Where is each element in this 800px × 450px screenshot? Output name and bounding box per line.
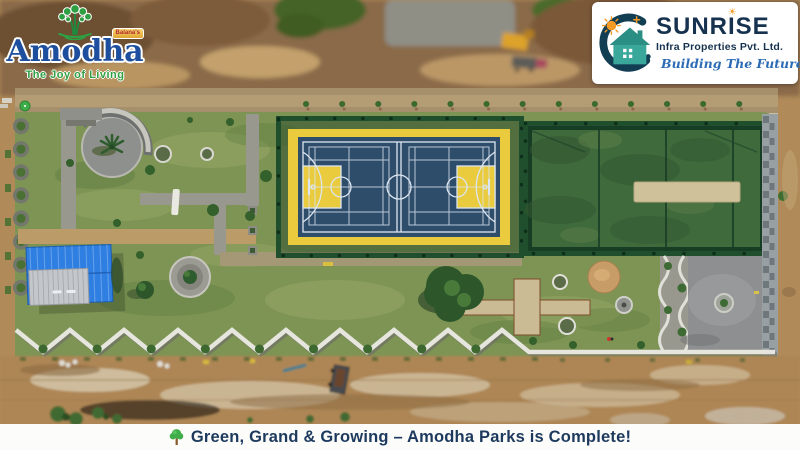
paved-plaza-area (660, 256, 763, 352)
dirt-road (0, 356, 800, 427)
sunrise-logo-card: SUNRISE ☀ Infra Properties Pvt. Ltd. Bui… (592, 2, 798, 84)
sunrise-mark-icon (594, 12, 656, 74)
basketball-court (279, 119, 522, 256)
sun-dot-icon: ☀ (728, 8, 737, 18)
round-seating-area (170, 257, 210, 297)
garden-umbrella (20, 101, 30, 111)
amodha-brand: Amodha (4, 38, 146, 67)
amodha-tagline: The Joy of Living (4, 69, 146, 81)
marketing-creative: Amodha Balana's The Joy of Living (0, 0, 800, 450)
caption-text: Green, Grand & Growing – Amodha Parks is… (191, 428, 631, 447)
sun-icon (603, 17, 620, 34)
right-compound-wall (762, 114, 778, 356)
person (607, 337, 611, 341)
sunrise-subtitle: Infra Properties Pvt. Ltd. (656, 41, 783, 53)
ring-planter (553, 275, 567, 289)
ring-planter (559, 318, 575, 334)
ring-planter (201, 148, 213, 160)
fountain (616, 297, 632, 313)
banner-tree-icon (169, 428, 184, 447)
ring-planter (155, 146, 171, 162)
sunrise-tagline: Building The Future (661, 56, 800, 71)
amodha-logo: Amodha Balana's The Joy of Living (4, 2, 146, 81)
clubhouse (26, 244, 125, 314)
amodha-badge: Balana's (112, 28, 144, 39)
cricket-pitch (634, 182, 740, 202)
caption-banner: Green, Grand & Growing – Amodha Parks is… (0, 424, 800, 450)
sunrise-brand: SUNRISE (656, 13, 770, 40)
cricket-practice-net (524, 124, 766, 254)
